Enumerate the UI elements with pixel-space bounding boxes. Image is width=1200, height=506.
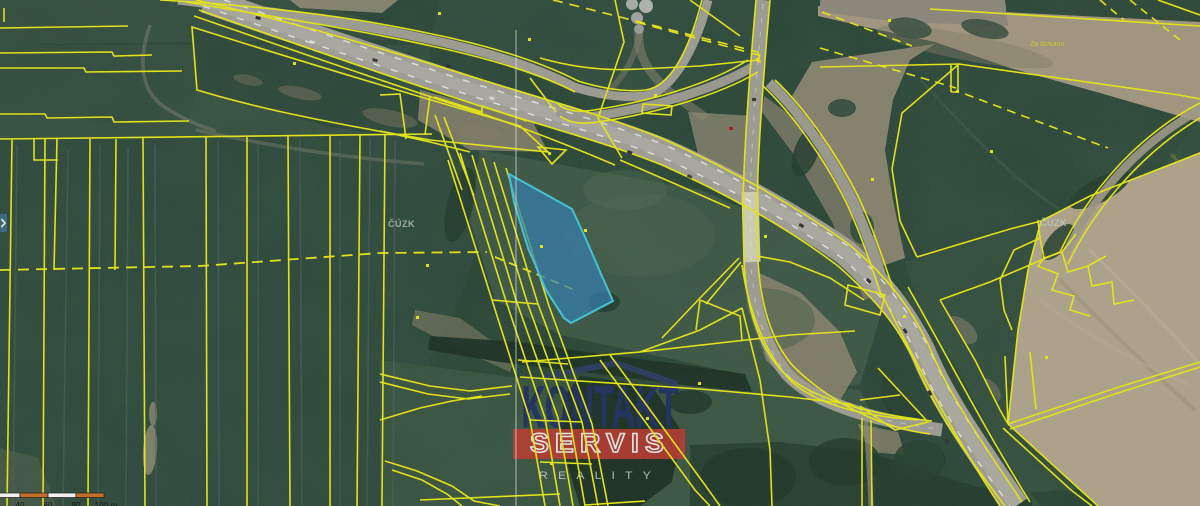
svg-text:80: 80 [72, 501, 81, 506]
svg-text:60: 60 [44, 501, 53, 506]
svg-text:40: 40 [16, 501, 25, 506]
svg-text:100 m: 100 m [95, 501, 118, 506]
